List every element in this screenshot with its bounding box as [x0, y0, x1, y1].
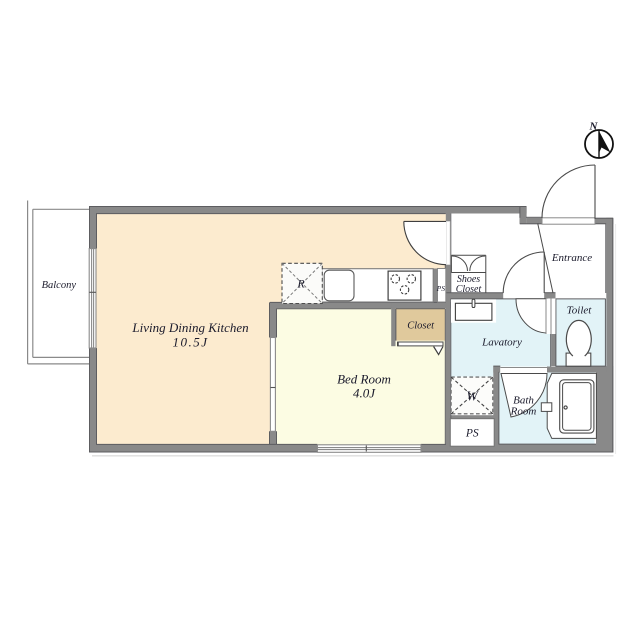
svg-text:Entrance: Entrance [551, 252, 592, 264]
svg-text:Lavatory: Lavatory [481, 337, 522, 349]
svg-text:Balcony: Balcony [42, 280, 77, 291]
svg-text:PS: PS [436, 284, 446, 293]
svg-text:W: W [466, 389, 479, 404]
svg-text:Closet: Closet [456, 284, 482, 295]
svg-text:Bed Room: Bed Room [337, 372, 391, 387]
svg-text:4.0J: 4.0J [353, 386, 376, 401]
svg-text:R: R [296, 277, 305, 291]
svg-text:Room: Room [510, 405, 537, 417]
svg-text:10.5J: 10.5J [172, 335, 208, 350]
svg-text:Toilet: Toilet [567, 305, 593, 317]
svg-text:N: N [589, 121, 599, 133]
svg-text:Living Dining Kitchen: Living Dining Kitchen [131, 320, 248, 335]
svg-text:PS: PS [465, 428, 479, 440]
svg-text:Closet: Closet [407, 321, 435, 332]
